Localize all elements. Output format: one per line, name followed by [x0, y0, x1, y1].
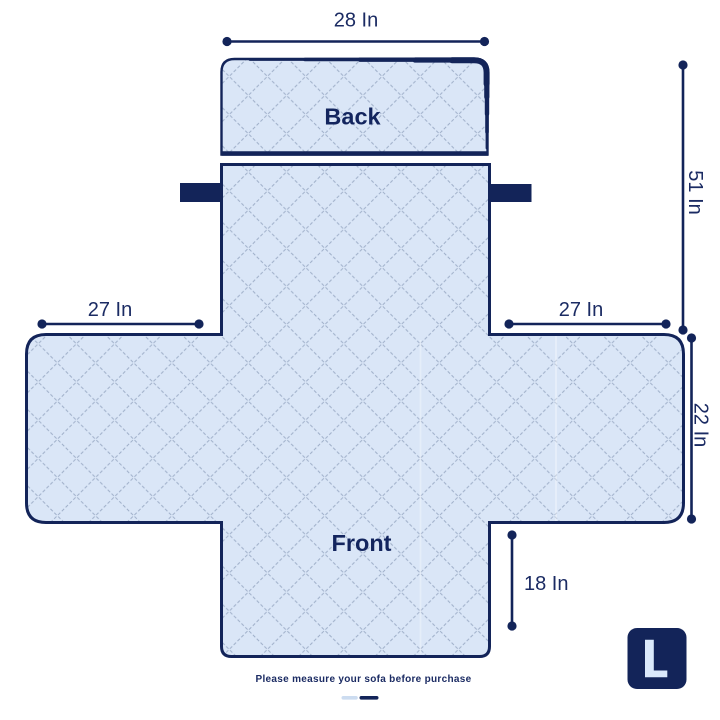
svg-text:51 In: 51 In — [684, 170, 706, 214]
svg-text:Front: Front — [331, 530, 391, 556]
svg-text:27 In: 27 In — [559, 299, 603, 321]
svg-text:Please measure your sofa befor: Please measure your sofa before purchase — [256, 674, 472, 685]
svg-text:27 In: 27 In — [88, 299, 132, 321]
svg-text:28 In: 28 In — [334, 10, 378, 32]
svg-text:Back: Back — [324, 104, 381, 130]
svg-text:22 In: 22 In — [690, 403, 712, 447]
svg-text:18 In: 18 In — [524, 573, 568, 595]
